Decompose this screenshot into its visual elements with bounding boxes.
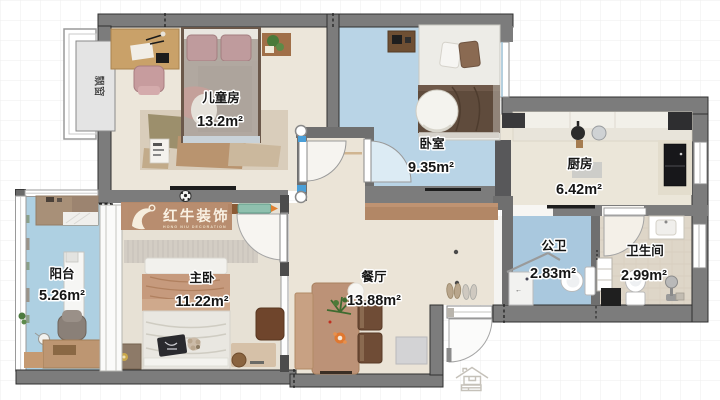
svg-text:餐厅: 餐厅 [360, 269, 387, 284]
svg-text:11.22m²: 11.22m² [175, 294, 228, 310]
svg-text:厨房: 厨房 [567, 156, 592, 171]
svg-text:飘窗: 飘窗 [93, 76, 106, 97]
svg-text:公卫: 公卫 [541, 239, 567, 253]
svg-text:主卧: 主卧 [189, 270, 215, 285]
svg-text:HONG NIU DECORATION: HONG NIU DECORATION [163, 225, 227, 229]
svg-text:6.42m²: 6.42m² [556, 182, 602, 198]
svg-text:13.2m²: 13.2m² [197, 114, 243, 130]
svg-text:2.83m²: 2.83m² [530, 266, 576, 282]
svg-text:2.99m²: 2.99m² [621, 268, 667, 284]
svg-text:阳台: 阳台 [49, 266, 74, 281]
svg-text:13.88m²: 13.88m² [347, 293, 401, 309]
svg-text:卫生间: 卫生间 [626, 243, 664, 258]
svg-text:9.35m²: 9.35m² [408, 160, 454, 176]
svg-text:红牛装饰: 红牛装饰 [163, 207, 230, 225]
svg-text:5.26m²: 5.26m² [39, 288, 85, 304]
svg-text:卧室: 卧室 [419, 136, 445, 151]
svg-text:儿童房: 儿童房 [201, 90, 240, 105]
svg-text:←: ← [515, 287, 522, 294]
